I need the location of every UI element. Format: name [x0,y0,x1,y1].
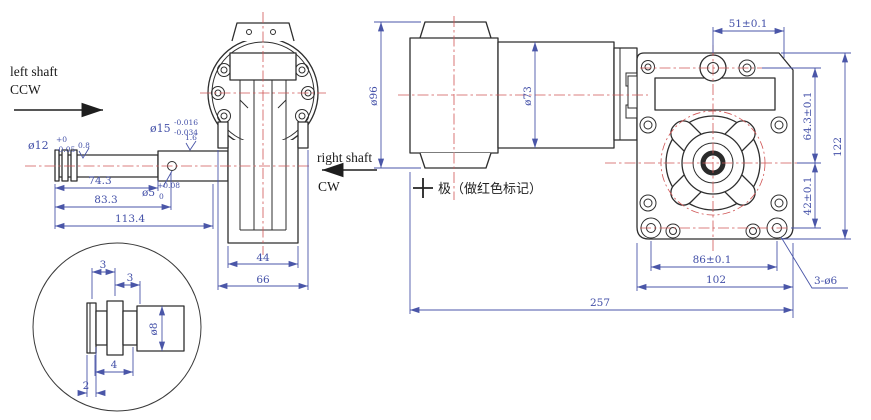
plus-polarity-symbol [413,178,433,198]
dim-dia15-tol-upper: -0.016 [174,118,198,127]
terminal-slot [655,78,775,110]
dim-dia12-tol-upper: +0 [56,135,67,144]
dim-113: 113.4 [115,213,145,225]
motor-bottom-cap [420,153,491,168]
dim-42: 42±0.1 [802,177,814,216]
dim-dia73: ø73 [522,86,534,106]
left-shaft-label: left shaft [10,64,58,79]
dim-86: 86±0.1 [693,254,732,266]
dim-66: 66 [256,274,270,286]
dim-83: 83.3 [94,194,117,206]
roughness-symbol-b [186,141,196,150]
dim-dia96: ø96 [368,86,380,106]
dim-dia15: ø15 [150,122,171,135]
dim-mount-holes: 3-ø6 [814,275,838,287]
dim-dia12-tol-lower: -0.05 [56,145,75,154]
right-ear [298,122,308,148]
polarity-note-label: 极（做红色标记） [438,181,542,197]
dim-dia5: ø5 [142,187,155,199]
dim-dia12: ø12 [28,139,49,152]
dim-257: 257 [590,297,610,309]
dim-74: 74.3 [88,175,111,187]
drawing-canvas: 74.3 83.3 113.4 ø12 +0 -0.05 ø15 -0.016 … [0,0,871,420]
roughness-mark-b: 1.6 [185,133,197,142]
dim-44: 44 [256,252,270,264]
motor-side-view [410,22,793,239]
dim-dia8: ø8 [148,322,160,335]
right-shaft-direction-label: CW [318,179,340,194]
dim-122: 122 [832,137,844,157]
dim-102: 102 [706,274,726,286]
dim-4: 4 [111,359,118,371]
dim-2: 2 [83,380,90,392]
left-ear [218,122,228,148]
dim-3a: 3 [100,259,107,271]
left-shaft-direction-label: CCW [10,82,41,97]
dim-3b: 3 [127,272,134,284]
dim-51: 51±0.1 [729,18,768,30]
gear-motor-engineering-drawing: 74.3 83.3 113.4 ø12 +0 -0.05 ø15 -0.016 … [0,0,871,420]
right-shaft-label: right shaft [317,150,372,165]
motor-top-cap [420,22,491,38]
dim-dia5-tol-lower: 0 [159,192,164,201]
dim-64-3: 64.3±0.1 [802,92,814,141]
dim-dia5-tol-upper: +0.08 [157,181,180,190]
shaft-detail-view [33,243,201,411]
